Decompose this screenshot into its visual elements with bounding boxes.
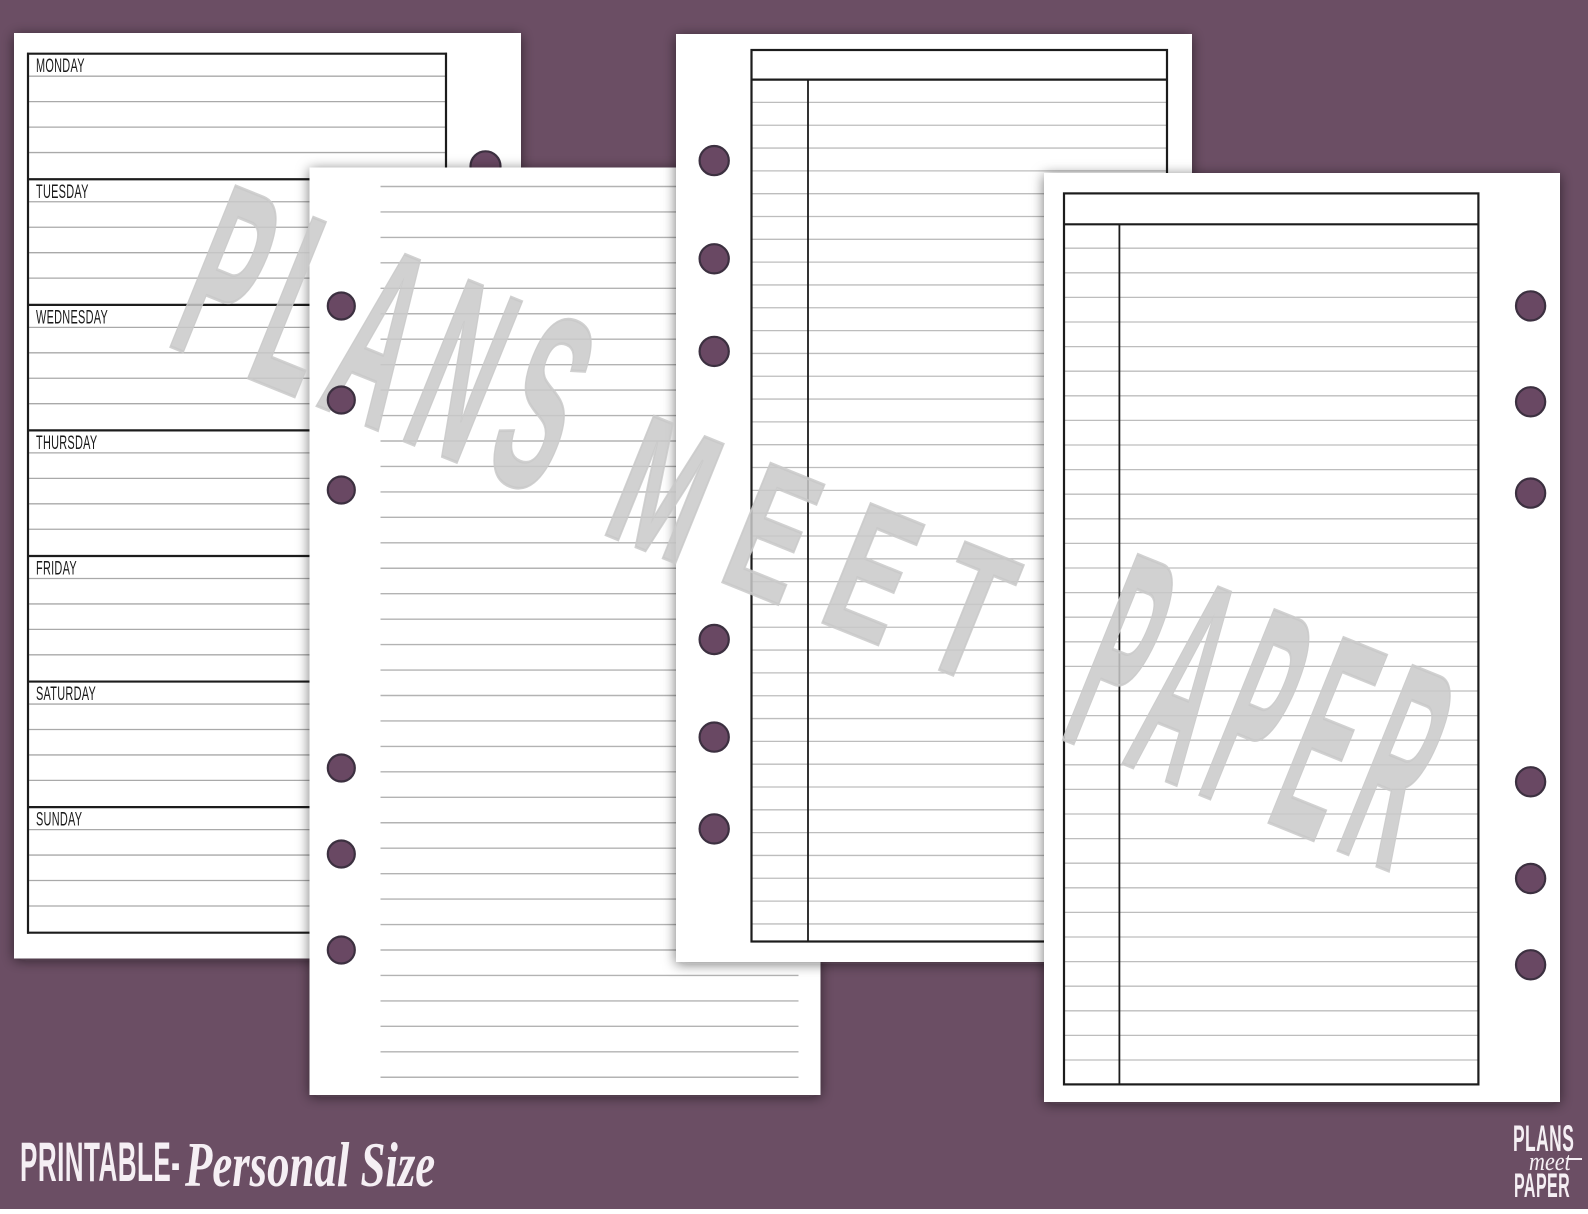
svg-text:Personal Size: Personal Size xyxy=(184,1129,435,1200)
svg-text:PRINTABLE-: PRINTABLE- xyxy=(20,1131,180,1194)
svg-text:SUNDAY: SUNDAY xyxy=(36,810,82,831)
svg-text:THURSDAY: THURSDAY xyxy=(36,433,98,454)
svg-text:PAPER: PAPER xyxy=(1514,1166,1570,1204)
svg-text:TUESDAY: TUESDAY xyxy=(36,182,89,203)
svg-text:MONDAY: MONDAY xyxy=(36,56,85,77)
svg-text:SATURDAY: SATURDAY xyxy=(36,684,96,705)
svg-text:FRIDAY: FRIDAY xyxy=(36,558,77,579)
svg-text:WEDNESDAY: WEDNESDAY xyxy=(36,307,108,328)
